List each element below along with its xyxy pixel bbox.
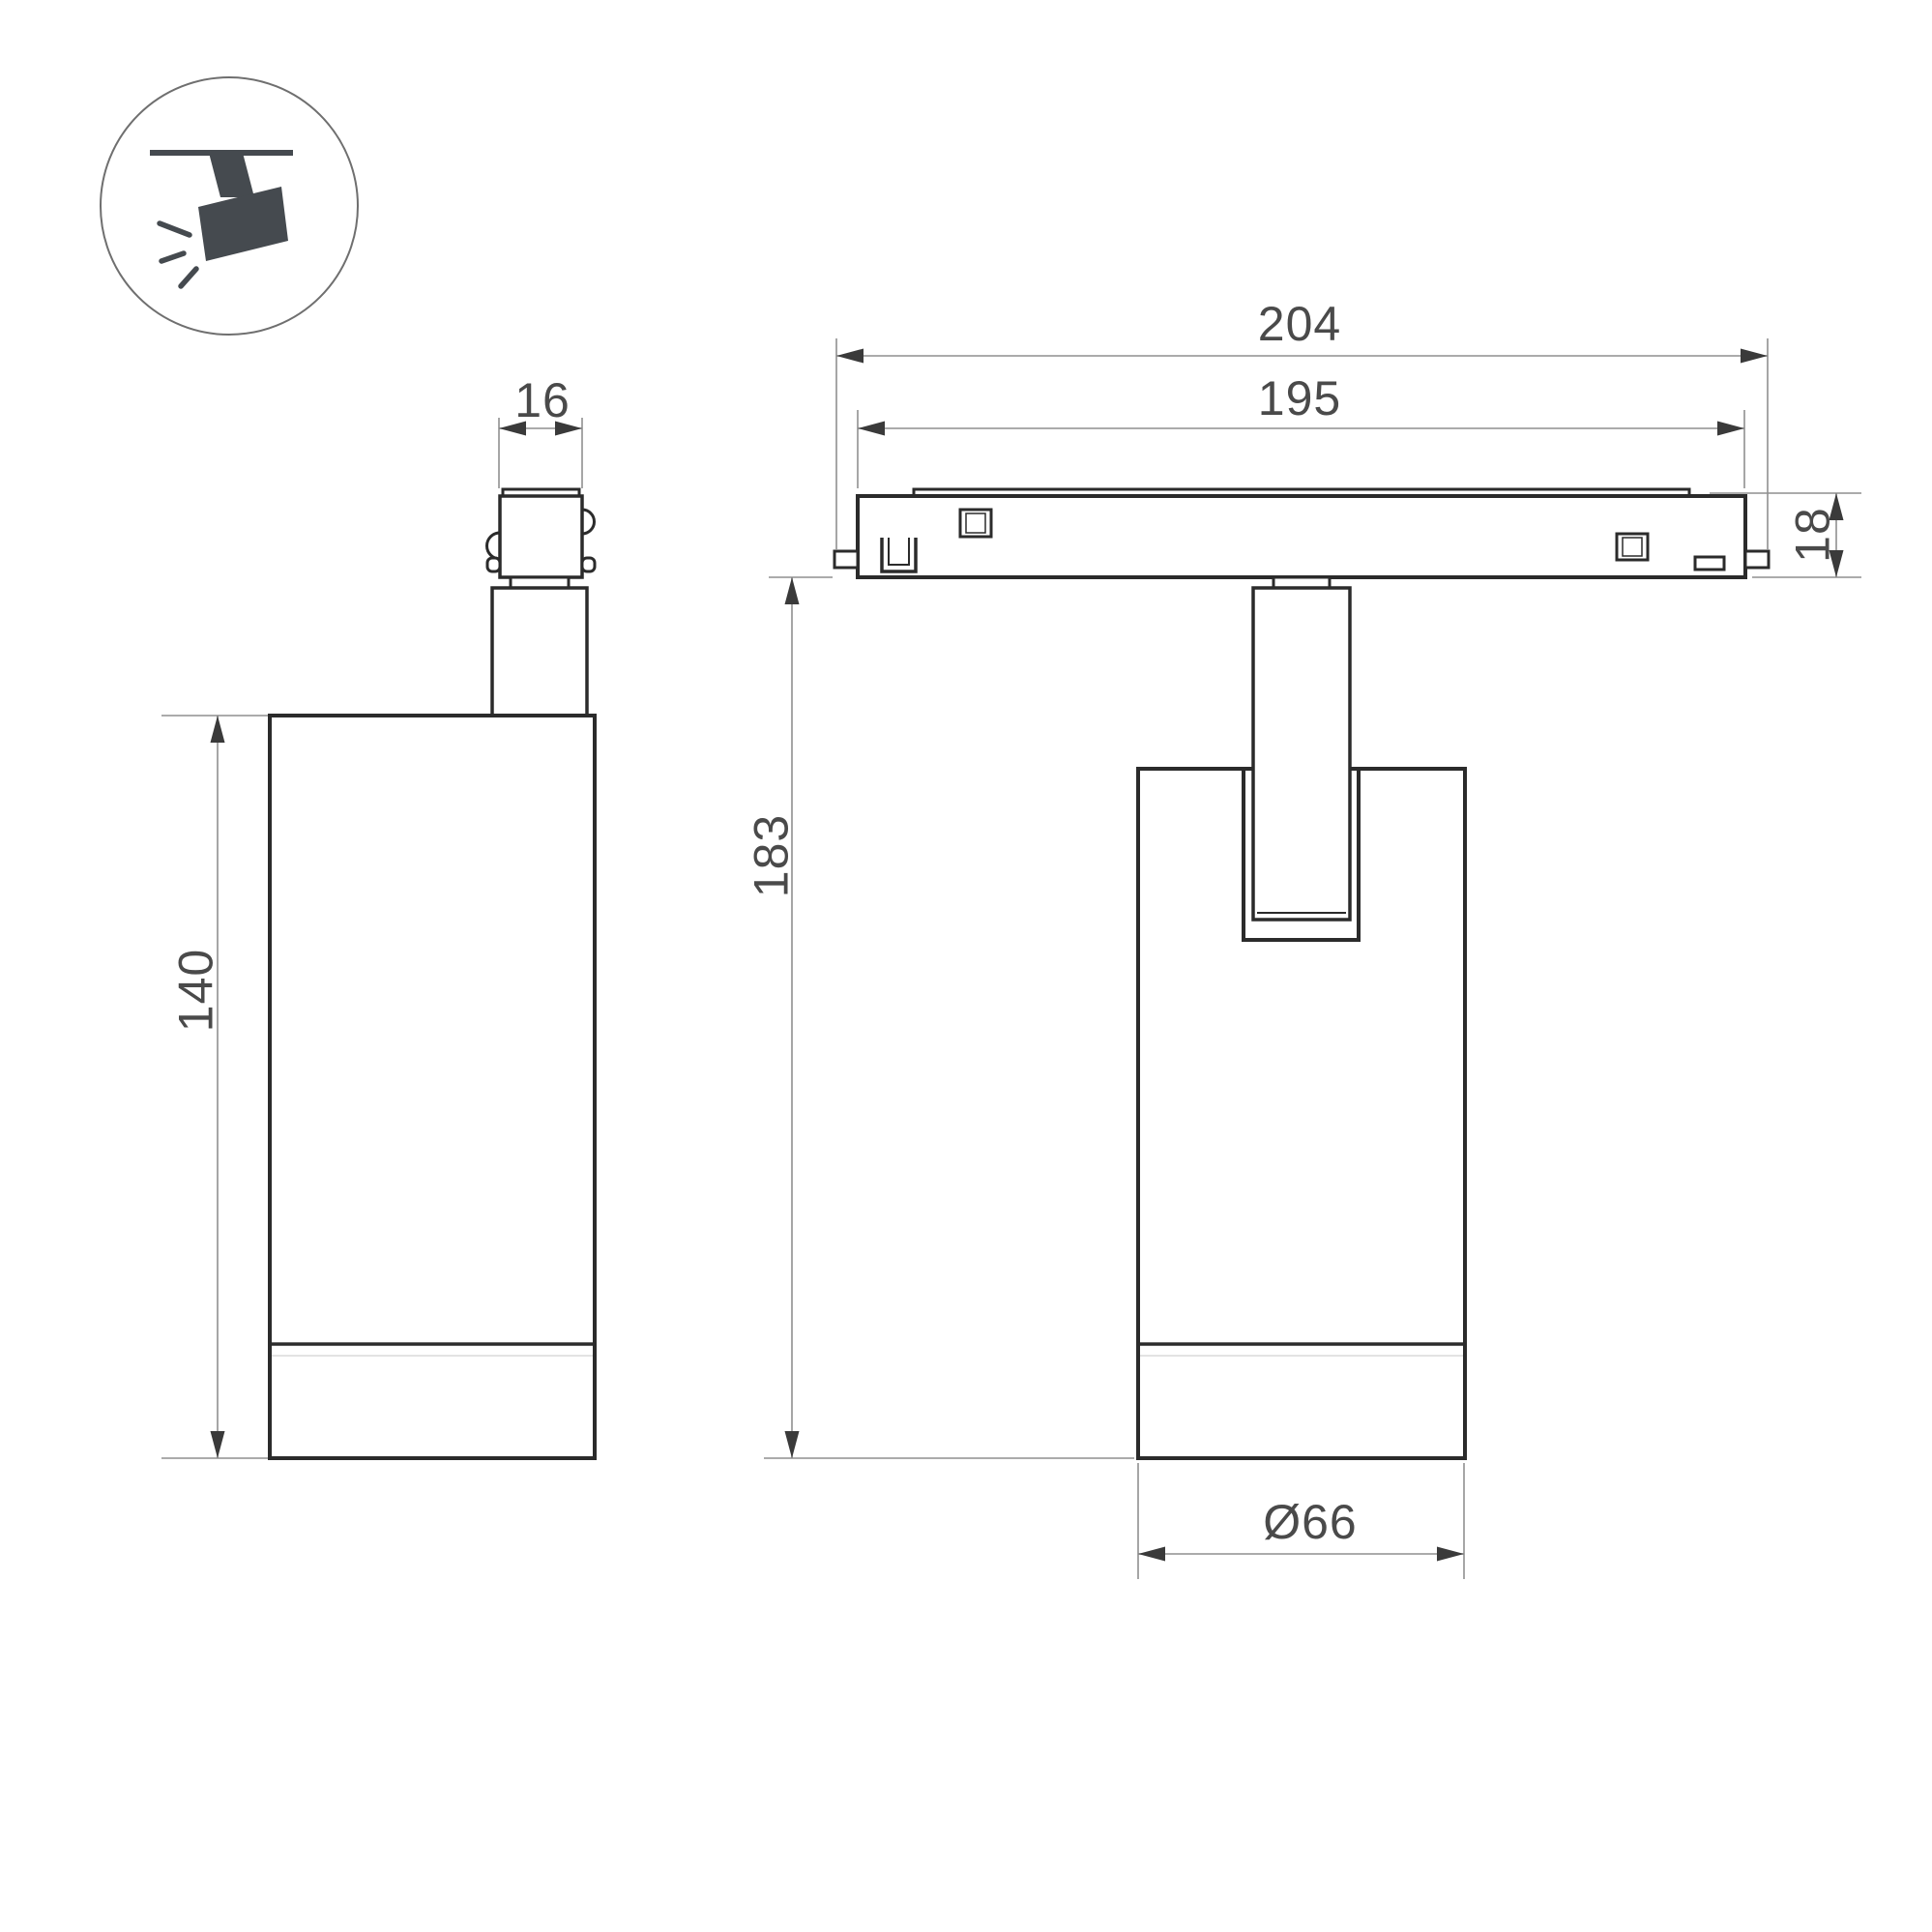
dim-140-arrow-bottom bbox=[211, 1431, 225, 1458]
dim-140-arrow-top bbox=[211, 716, 225, 743]
adapter-spring-clip-left bbox=[487, 533, 501, 559]
dim-66-arrow-right bbox=[1437, 1547, 1464, 1562]
dimension-adapter-width: 16 bbox=[499, 373, 582, 488]
adapter-tab-left bbox=[487, 558, 500, 571]
dim-183-label: 183 bbox=[745, 814, 799, 897]
lamp-body-side bbox=[270, 716, 595, 1458]
dim-18-label: 18 bbox=[1786, 507, 1840, 563]
swivel-stem-front bbox=[1253, 588, 1350, 920]
adapter-tab-right bbox=[582, 558, 595, 571]
dimension-body-height: 140 bbox=[161, 716, 268, 1458]
dim-204-label: 204 bbox=[1258, 297, 1341, 351]
track-contact-slot bbox=[1695, 557, 1724, 570]
track-end-tab-right bbox=[1745, 551, 1769, 568]
adapter-spring-clip-right bbox=[582, 510, 595, 534]
adapter-block bbox=[500, 496, 582, 577]
side-view bbox=[270, 489, 595, 1458]
dim-195-label: 195 bbox=[1258, 371, 1341, 425]
dimension-track-inner-length: 195 bbox=[858, 371, 1744, 488]
drawing-canvas: 16 204 195 18 140 bbox=[0, 0, 1932, 1932]
dim-183-arrow-top bbox=[785, 577, 800, 604]
dim-66-label: Ø66 bbox=[1263, 1495, 1358, 1549]
swivel-stem-side bbox=[492, 588, 587, 716]
dim-204-arrow-left bbox=[836, 349, 864, 364]
dim-183-arrow-bottom bbox=[785, 1431, 800, 1458]
track-end-tab-left bbox=[834, 551, 858, 568]
dim-16-label: 16 bbox=[514, 373, 571, 427]
dim-195-arrow-left bbox=[858, 422, 885, 436]
spotlight-pictogram bbox=[101, 77, 358, 335]
dimension-overall-height: 183 bbox=[745, 577, 1135, 1458]
dim-204-arrow-right bbox=[1741, 349, 1768, 364]
dim-140-label: 140 bbox=[169, 949, 223, 1032]
front-view-fixture bbox=[1138, 577, 1465, 1458]
dimension-body-diameter: Ø66 bbox=[1138, 1463, 1464, 1579]
front-view-track bbox=[834, 489, 1769, 577]
dim-195-arrow-right bbox=[1717, 422, 1744, 436]
technical-drawing-page: 16 204 195 18 140 bbox=[0, 0, 1932, 1932]
dim-66-arrow-left bbox=[1138, 1547, 1165, 1562]
